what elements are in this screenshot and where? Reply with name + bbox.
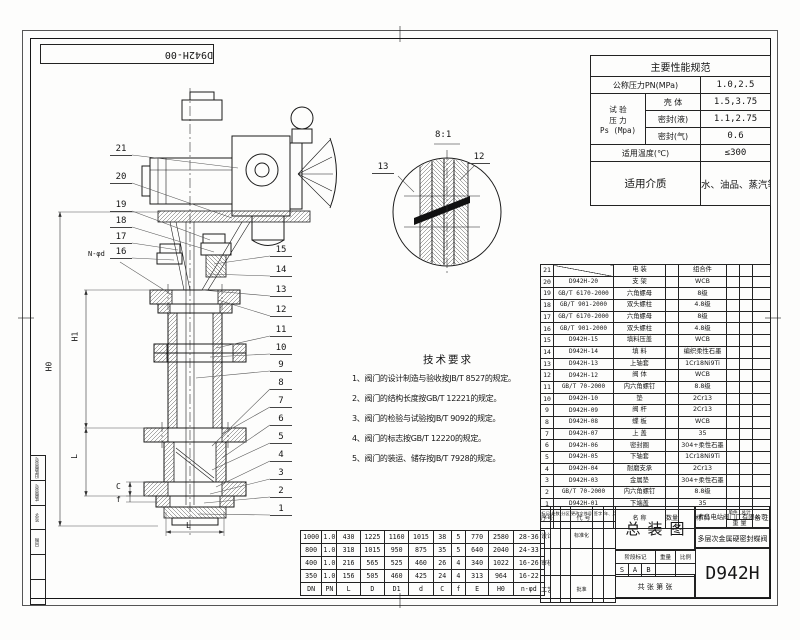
part-seq: 13	[541, 358, 554, 370]
dim-dn: 800	[301, 544, 322, 557]
part-name: 支 架	[614, 276, 666, 288]
part-seq: 10	[541, 393, 554, 405]
part-unit-weight	[727, 440, 740, 452]
dim-l: 430	[337, 531, 360, 544]
dimension-table: 1000 1.0 430 1225 1160 1015 38 5 770 258…	[300, 530, 545, 596]
part-name: 金属垫	[614, 475, 666, 487]
dim-e: 313	[465, 570, 488, 583]
sheet-count-label: 共 张 第 张	[615, 574, 695, 598]
part-seq: 17	[541, 311, 554, 323]
part-remark	[753, 358, 771, 370]
dim-e: 340	[465, 557, 488, 570]
parts-table-row: 20 D942H-20 支 架 WCB	[541, 276, 771, 288]
part-unit-weight	[727, 323, 740, 335]
part-seq: 2	[541, 487, 554, 499]
part-name: 密封圈	[614, 440, 666, 452]
dim-d1: 950	[385, 544, 409, 557]
dim-h0: 964	[489, 570, 513, 583]
title-block-signature-grid: 标记 处数 分区 更改文件号 签字 年、月、日 设计 标准化 审核 工艺 批准	[540, 506, 616, 603]
parts-table-row: 7 D942H-07 上 盖 35	[541, 428, 771, 440]
dim-d-small: 875	[409, 544, 433, 557]
parts-table-row: 10 D942H-10 垫 2Cr13	[541, 393, 771, 405]
sig-header-mark: 标记	[541, 507, 551, 522]
part-total-weight	[740, 300, 753, 312]
part-code: D942H-07	[554, 428, 614, 440]
parts-table-row: 13 D942H-13 上轴套 1Cr18Ni9Ti	[541, 358, 771, 370]
dim-header-pn: PN	[322, 583, 337, 596]
part-material: WCB	[679, 335, 727, 347]
part-seq: 11	[541, 381, 554, 393]
dim-h0: 2040	[489, 544, 513, 557]
spec-shell-value: 1.5,3.75	[701, 94, 771, 111]
part-unit-weight	[727, 300, 740, 312]
part-material: WCB	[679, 416, 727, 428]
part-unit-weight	[727, 311, 740, 323]
part-unit-weight	[727, 265, 740, 277]
dim-dn: 400	[301, 557, 322, 570]
part-qty	[666, 276, 679, 288]
part-material: 35	[679, 428, 727, 440]
part-remark	[753, 381, 771, 393]
part-unit-weight	[727, 416, 740, 428]
part-code: D942H-20	[554, 276, 614, 288]
part-code: D942H-09	[554, 405, 614, 417]
drawing-type-label: 总装图	[615, 506, 695, 550]
balloon-15: 15	[270, 245, 292, 257]
part-name: 垫	[614, 393, 666, 405]
dim-header-d1: D1	[385, 583, 409, 596]
part-code: GB/T 70-2000	[554, 487, 614, 499]
part-remark	[753, 276, 771, 288]
part-remark	[753, 300, 771, 312]
part-total-weight	[740, 475, 753, 487]
dim-header-h0: H0	[489, 583, 513, 596]
part-remark	[753, 335, 771, 347]
balloon-11: 11	[270, 325, 292, 337]
part-seq: 7	[541, 428, 554, 440]
part-seq: 21	[541, 265, 554, 277]
spec-pn-label: 公称压力PN(MPa)	[591, 77, 701, 94]
part-name: 上 盖	[614, 428, 666, 440]
part-code: D942H-03	[554, 475, 614, 487]
spec-seal-liquid-value: 1.1,2.75	[701, 111, 771, 128]
tech-requirements: 技术要求 1、阀门的设计制造与验收按JB/T 8527的规定。 2、阀门的结构长…	[352, 352, 544, 473]
part-qty	[666, 288, 679, 300]
dim-c: 35	[433, 544, 451, 557]
border-cell-original-no: 底图总号	[31, 480, 46, 505]
part-remark	[753, 265, 771, 277]
scale-label: 比例	[676, 551, 696, 564]
part-code: D942H-08	[554, 416, 614, 428]
dim-header-d-small: d	[409, 583, 433, 596]
parts-list-table: 21 电 装 组合件 20 D942H-20 支 架 WCB	[540, 264, 771, 529]
part-qty	[666, 311, 679, 323]
parts-table-row: 3 D942H-03 金属垫 304+柔性石墨	[541, 475, 771, 487]
dim-label-f: f	[116, 495, 121, 504]
parts-table-row: 17 GB/T 6170-2000 六角螺母 8级	[541, 311, 771, 323]
part-material: WCB	[679, 370, 727, 382]
parts-table-row: 16 GB/T 901-2000 双头螺柱 4.8级	[541, 323, 771, 335]
part-qty	[666, 358, 679, 370]
dim-bolt-holes: 16-22	[513, 570, 544, 583]
part-material: 1Cr18Ni9Ti	[679, 358, 727, 370]
part-qty	[666, 463, 679, 475]
dim-d-small: 1015	[409, 531, 433, 544]
part-name: 双头螺柱	[614, 323, 666, 335]
part-code: GB/T 901-2000	[554, 300, 614, 312]
balloon-3: 3	[270, 468, 292, 480]
electric-actuator	[142, 92, 337, 246]
part-material: 编织柔性石墨	[679, 346, 727, 358]
spec-medium-label: 适用介质	[591, 162, 701, 206]
dim-f: 5	[451, 531, 465, 544]
sig-review-extra	[571, 549, 593, 576]
part-total-weight	[740, 265, 753, 277]
detail-balloon-13: 13	[372, 162, 394, 174]
part-qty	[666, 440, 679, 452]
part-seq: 4	[541, 463, 554, 475]
balloon-5: 5	[270, 432, 292, 444]
part-unit-weight	[727, 452, 740, 464]
balloon-18: 18	[110, 216, 132, 228]
balloon-10: 10	[270, 343, 292, 355]
stage-mark-block: 阶段标记 重量 比例 S A B	[615, 550, 696, 577]
balloon-17: 17	[110, 232, 132, 244]
part-total-weight	[740, 323, 753, 335]
cad-drawing-sheet: { "corner_code": "D942H-00", "spec_table…	[0, 0, 800, 640]
part-total-weight	[740, 288, 753, 300]
parts-table-row: 9 D942H-09 阀 杆 2Cr13	[541, 405, 771, 417]
dim-dn: 1000	[301, 531, 322, 544]
part-code: D942H-12	[554, 370, 614, 382]
part-material: 4.8级	[679, 323, 727, 335]
spec-shell-label: 壳 体	[646, 94, 701, 111]
tech-requirement-item: 1、阀门的设计制造与验收按JB/T 8527的规定。	[352, 373, 544, 384]
parts-table-row: 11 GB/T 70-2000 内六角螺钉 8.8级	[541, 381, 771, 393]
part-material: 304+柔性石墨	[679, 475, 727, 487]
performance-spec-table: 主要性能规范 公称压力PN(MPa) 1.0,2.5 试 验 压 力 Ps (M…	[590, 55, 771, 206]
part-total-weight	[740, 335, 753, 347]
part-qty	[666, 265, 679, 277]
part-remark	[753, 405, 771, 417]
tech-requirement-item: 5、阀门的装运、储存按JB/T 7928的规定。	[352, 453, 544, 464]
dim-label-n-phi-d: N-φd	[88, 250, 105, 258]
part-qty	[666, 405, 679, 417]
part-unit-weight	[727, 405, 740, 417]
part-code: D942H-13	[554, 358, 614, 370]
dimension-lines	[58, 212, 224, 536]
spec-pn-value: 1.0,2.5	[701, 77, 771, 94]
part-total-weight	[740, 452, 753, 464]
parts-rows: 21 电 装 组合件 20 D942H-20 支 架 WCB	[541, 265, 771, 510]
dim-d-big: 505	[360, 570, 384, 583]
part-unit-weight	[727, 358, 740, 370]
spec-seal-gas-label: 密封(气)	[646, 128, 701, 145]
part-remark	[753, 487, 771, 499]
part-seq: 9	[541, 405, 554, 417]
dim-label-h0: H0	[44, 362, 53, 372]
dim-label-c: C	[116, 482, 121, 491]
model-number: D942H	[695, 548, 770, 598]
dimension-header-row: DN PN L D D1 d C f E H0 n-φd	[301, 583, 545, 596]
part-seq: 5	[541, 452, 554, 464]
part-seq: 20	[541, 276, 554, 288]
dim-header-f: f	[451, 583, 465, 596]
dim-pn: 1.0	[322, 557, 337, 570]
tech-requirement-item: 4、阀门的标志按GB/T 12220的规定。	[352, 433, 544, 444]
dim-bolt-holes: 28-36	[513, 531, 544, 544]
part-seq: 16	[541, 323, 554, 335]
tech-requirements-title: 技术要求	[352, 352, 544, 367]
dim-pn: 1.0	[322, 531, 337, 544]
part-code	[554, 265, 614, 277]
part-material: 2Cr13	[679, 405, 727, 417]
part-name: 阀 杆	[614, 405, 666, 417]
sig-header-date: 年、月、日	[604, 507, 616, 522]
part-name: 阀 体	[614, 370, 666, 382]
sig-header-count: 处数	[551, 507, 561, 522]
dim-header-d-big: D	[360, 583, 384, 596]
part-total-weight	[740, 358, 753, 370]
part-total-weight	[740, 487, 753, 499]
dim-f: 5	[451, 544, 465, 557]
part-name: 上轴套	[614, 358, 666, 370]
spec-temp-value: ≤300	[701, 145, 771, 162]
part-code: GB/T 6170-2000	[554, 288, 614, 300]
balloon-1: 1	[270, 504, 292, 516]
part-total-weight	[740, 311, 753, 323]
parts-table-row: 21 电 装 组合件	[541, 265, 771, 277]
parts-table-row: 6 D942H-06 密封圈 304+柔性石墨	[541, 440, 771, 452]
dim-f: 4	[451, 557, 465, 570]
dim-e: 640	[465, 544, 488, 557]
part-material: 组合件	[679, 265, 727, 277]
part-unit-weight	[727, 487, 740, 499]
parts-table-row: 15 D942H-15 填料压盖 WCB	[541, 335, 771, 347]
sig-approve-label: 批准	[571, 576, 593, 603]
dim-label-h1: H1	[70, 332, 79, 342]
parts-table-row: 12 D942H-12 阀 体 WCB	[541, 370, 771, 382]
part-qty	[666, 452, 679, 464]
dim-label-l-vertical: L	[70, 454, 79, 459]
dimension-rows: 1000 1.0 430 1225 1160 1015 38 5 770 258…	[301, 531, 545, 583]
part-remark	[753, 288, 771, 300]
part-unit-weight	[727, 346, 740, 358]
part-material: 8级	[679, 311, 727, 323]
part-seq: 12	[541, 370, 554, 382]
part-qty	[666, 428, 679, 440]
valve-body	[144, 422, 246, 525]
balloon-8: 8	[270, 378, 292, 390]
part-code: D942H-15	[554, 335, 614, 347]
spec-seal-gas-value: 0.6	[701, 128, 771, 145]
part-remark	[753, 440, 771, 452]
border-cell-blank-1	[31, 555, 46, 580]
dim-dn: 350	[301, 570, 322, 583]
part-unit-weight	[727, 428, 740, 440]
spec-seal-liquid-label: 密封(液)	[646, 111, 701, 128]
parts-table-row: 5 D942H-05 下轴套 1Cr18Ni9Ti	[541, 452, 771, 464]
part-total-weight	[740, 276, 753, 288]
part-material: 8.8级	[679, 487, 727, 499]
dim-header-c: C	[433, 583, 451, 596]
part-qty	[666, 381, 679, 393]
part-code: GB/T 901-2000	[554, 323, 614, 335]
product-name: 多层次金属硬密封蝶阀	[695, 528, 770, 548]
border-cell-old-original-no: 旧底图总号	[31, 456, 46, 481]
part-remark	[753, 311, 771, 323]
dimension-table-row: 400 1.0 216 565 525 460 26 4 340 1022 16…	[301, 557, 545, 570]
tech-requirement-item: 2、阀门的结构长度按GB/T 12221的规定。	[352, 393, 544, 404]
dim-header-dn: DN	[301, 583, 322, 596]
part-total-weight	[740, 393, 753, 405]
part-total-weight	[740, 370, 753, 382]
part-code: D942H-14	[554, 346, 614, 358]
dimension-table-row: 350 1.0 156 505 460 425 24 4 313 964 16-…	[301, 570, 545, 583]
part-name: 耐磨支承	[614, 463, 666, 475]
detail-scale-label: 8:1	[435, 130, 451, 140]
part-seq: 19	[541, 288, 554, 300]
company-name: 青岛电站阀门厂有限公司	[695, 506, 770, 528]
dimension-table-row: 1000 1.0 430 1225 1160 1015 38 5 770 258…	[301, 531, 545, 544]
dim-d-big: 565	[360, 557, 384, 570]
dim-d-small: 425	[409, 570, 433, 583]
dim-c: 38	[433, 531, 451, 544]
weight-label: 重量	[656, 551, 676, 564]
part-material: 8.8级	[679, 381, 727, 393]
part-name: 填料压盖	[614, 335, 666, 347]
balloon-12: 12	[270, 305, 292, 317]
part-code: D942H-05	[554, 452, 614, 464]
balloon-16: 16	[110, 247, 132, 259]
parts-table-row: 4 D942H-04 耐磨支承 2Cr13	[541, 463, 771, 475]
part-remark	[753, 428, 771, 440]
dim-header-e: E	[465, 583, 488, 596]
sig-header-zone: 分区	[561, 507, 571, 522]
part-remark	[753, 393, 771, 405]
part-remark	[753, 475, 771, 487]
part-name: 六角螺母	[614, 311, 666, 323]
dim-f: 4	[451, 570, 465, 583]
dim-c: 24	[433, 570, 451, 583]
dim-pn: 1.0	[322, 570, 337, 583]
part-qty	[666, 346, 679, 358]
tech-requirement-item: 3、阀门的检验与试验按JB/T 9092的规定。	[352, 413, 544, 424]
dim-c: 26	[433, 557, 451, 570]
dim-h0: 1022	[489, 557, 513, 570]
balloon-21: 21	[110, 144, 132, 156]
part-code: GB/T 70-2000	[554, 381, 614, 393]
sig-header-sign: 签字	[593, 507, 604, 522]
border-record-column: 旧底图总号 底图总号 签字 日期	[30, 455, 46, 605]
spec-temp-label: 适用温度(℃)	[591, 145, 701, 162]
part-unit-weight	[727, 393, 740, 405]
part-seq: 15	[541, 335, 554, 347]
part-name: 内六角螺钉	[614, 381, 666, 393]
part-name: 内六角螺钉	[614, 487, 666, 499]
part-total-weight	[740, 405, 753, 417]
parts-table-row: 2 GB/T 70-2000 内六角螺钉 8.8级	[541, 487, 771, 499]
part-name: 六角螺母	[614, 288, 666, 300]
border-cell-blank-2	[31, 579, 46, 604]
border-cell-date: 日期	[31, 530, 46, 555]
part-remark	[753, 463, 771, 475]
part-qty	[666, 323, 679, 335]
part-remark	[753, 416, 771, 428]
dim-h0: 2580	[489, 531, 513, 544]
balloon-9: 9	[270, 360, 292, 372]
part-unit-weight	[727, 370, 740, 382]
part-material: 2Cr13	[679, 393, 727, 405]
balloon-7: 7	[270, 396, 292, 408]
dim-d1: 1160	[385, 531, 409, 544]
part-seq: 8	[541, 416, 554, 428]
dim-header-bolt-holes: n-φd	[513, 583, 544, 596]
dim-header-l: L	[337, 583, 360, 596]
parts-table-row: 19 GB/T 6170-2000 六角螺母 8级	[541, 288, 771, 300]
part-unit-weight	[727, 463, 740, 475]
spec-title: 主要性能规范	[591, 56, 771, 77]
balloon-19: 19	[110, 200, 132, 212]
dim-pn: 1.0	[322, 544, 337, 557]
tech-requirements-list: 1、阀门的设计制造与验收按JB/T 8527的规定。 2、阀门的结构长度按GB/…	[352, 373, 544, 464]
part-material: 8级	[679, 288, 727, 300]
part-remark	[753, 346, 771, 358]
part-qty	[666, 393, 679, 405]
dim-d-big: 1225	[360, 531, 384, 544]
dim-l: 318	[337, 544, 360, 557]
part-remark	[753, 452, 771, 464]
part-material: 2Cr13	[679, 463, 727, 475]
part-total-weight	[740, 428, 753, 440]
part-qty	[666, 300, 679, 312]
dim-d1: 525	[385, 557, 409, 570]
part-material: WCB	[679, 276, 727, 288]
part-name: 填 料	[614, 346, 666, 358]
part-code: D942H-04	[554, 463, 614, 475]
dim-bolt-holes: 16-26	[513, 557, 544, 570]
part-unit-weight	[727, 335, 740, 347]
part-total-weight	[740, 463, 753, 475]
dim-d1: 460	[385, 570, 409, 583]
balloon-6: 6	[270, 414, 292, 426]
part-name: 电 装	[614, 265, 666, 277]
part-total-weight	[740, 381, 753, 393]
part-total-weight	[740, 440, 753, 452]
part-total-weight	[740, 346, 753, 358]
part-name: 蝶 板	[614, 416, 666, 428]
balloon-2: 2	[270, 486, 292, 498]
balloon-13: 13	[270, 285, 292, 297]
part-qty	[666, 475, 679, 487]
part-code: D942H-10	[554, 393, 614, 405]
sig-header-docno: 更改文件号	[571, 507, 593, 522]
part-remark	[753, 370, 771, 382]
part-unit-weight	[727, 475, 740, 487]
part-material: 4.8级	[679, 300, 727, 312]
spec-test-pressure-label: 试 验 压 力 Ps (Mpa)	[591, 94, 646, 145]
dim-l: 216	[337, 557, 360, 570]
part-material: 304+柔性石墨	[679, 440, 727, 452]
dim-l: 156	[337, 570, 360, 583]
detail-balloon-12: 12	[468, 152, 490, 164]
balloon-20: 20	[110, 172, 132, 184]
part-total-weight	[740, 416, 753, 428]
part-name: 双头螺柱	[614, 300, 666, 312]
part-seq: 18	[541, 300, 554, 312]
part-material: 1Cr18Ni9Ti	[679, 452, 727, 464]
dim-d-big: 1015	[360, 544, 384, 557]
